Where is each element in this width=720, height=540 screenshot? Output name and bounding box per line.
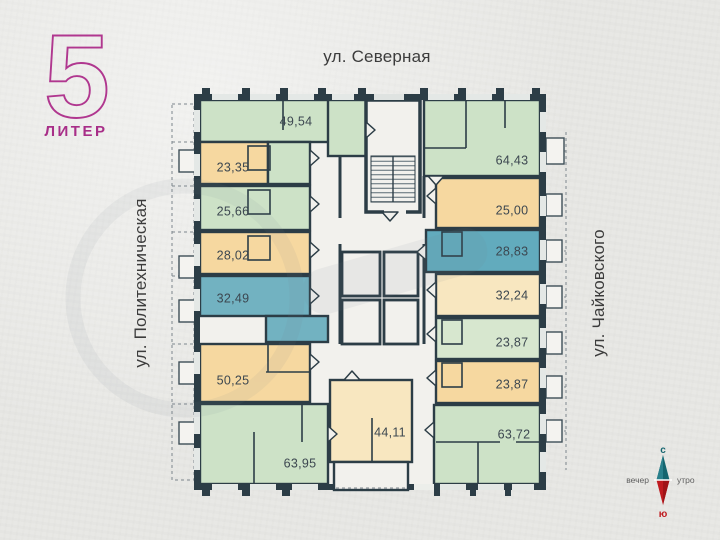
street-left-label: ул. Политехническая [131, 198, 150, 367]
compass-east-label: утро [677, 475, 695, 485]
apartment-area-label: 28,02 [217, 248, 250, 262]
compass-west-label: вечер [626, 475, 649, 485]
apartment-area-label: 44,11 [374, 425, 406, 439]
apartment-area-label: 64,43 [496, 153, 529, 167]
floor-plan-page: 49,5423,3525,6628,0232,4950,2563,9544,11… [0, 0, 720, 540]
apartment-region [434, 405, 540, 484]
apartment-area-label: 49,54 [280, 114, 313, 128]
apartment-area-label: 25,00 [496, 203, 529, 217]
compass: с ю вечер утро [626, 445, 695, 520]
apartment-area-label: 23,35 [217, 160, 250, 174]
balconies-right [546, 132, 566, 470]
apartment-area-label: 23,87 [496, 377, 529, 391]
apartment-area-label: 25,66 [217, 204, 250, 218]
liter-label: ЛИТЕР [45, 123, 108, 140]
apartment-region [268, 142, 310, 184]
floor-plan-drawing: 49,5423,3525,6628,0232,4950,2563,9544,11… [0, 0, 720, 540]
compass-north-label: с [660, 445, 666, 456]
balconies-left [172, 104, 195, 480]
apartment-area-label: 63,72 [498, 427, 531, 441]
street-right-label: ул. Чайковского [589, 229, 608, 357]
apartment-region [330, 380, 412, 462]
liter-mark: 5 ЛИТЕР [44, 11, 110, 143]
apartment-region [328, 100, 366, 156]
apartment-region [200, 404, 328, 484]
apartment-area-label: 23,87 [496, 335, 529, 349]
apartment-area-label: 63,95 [284, 456, 317, 470]
apartment-area-label: 32,49 [217, 291, 250, 305]
street-top-label: ул. Северная [323, 47, 430, 66]
apartment-area-label: 28,83 [496, 244, 529, 258]
elevator-shaft [384, 300, 418, 344]
apartment-area-label: 32,24 [496, 288, 529, 302]
balcony-bottom-center [334, 462, 408, 490]
compass-south-label: ю [659, 509, 668, 520]
apartment-area-label: 50,25 [217, 373, 250, 387]
